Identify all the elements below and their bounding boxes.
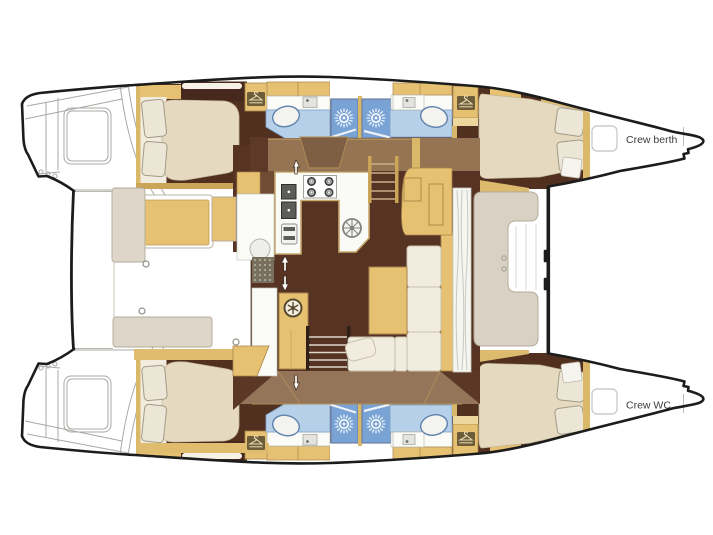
svg-text:Crew WC: Crew WC <box>626 400 671 412</box>
svg-text:Crew berth: Crew berth <box>626 134 678 146</box>
